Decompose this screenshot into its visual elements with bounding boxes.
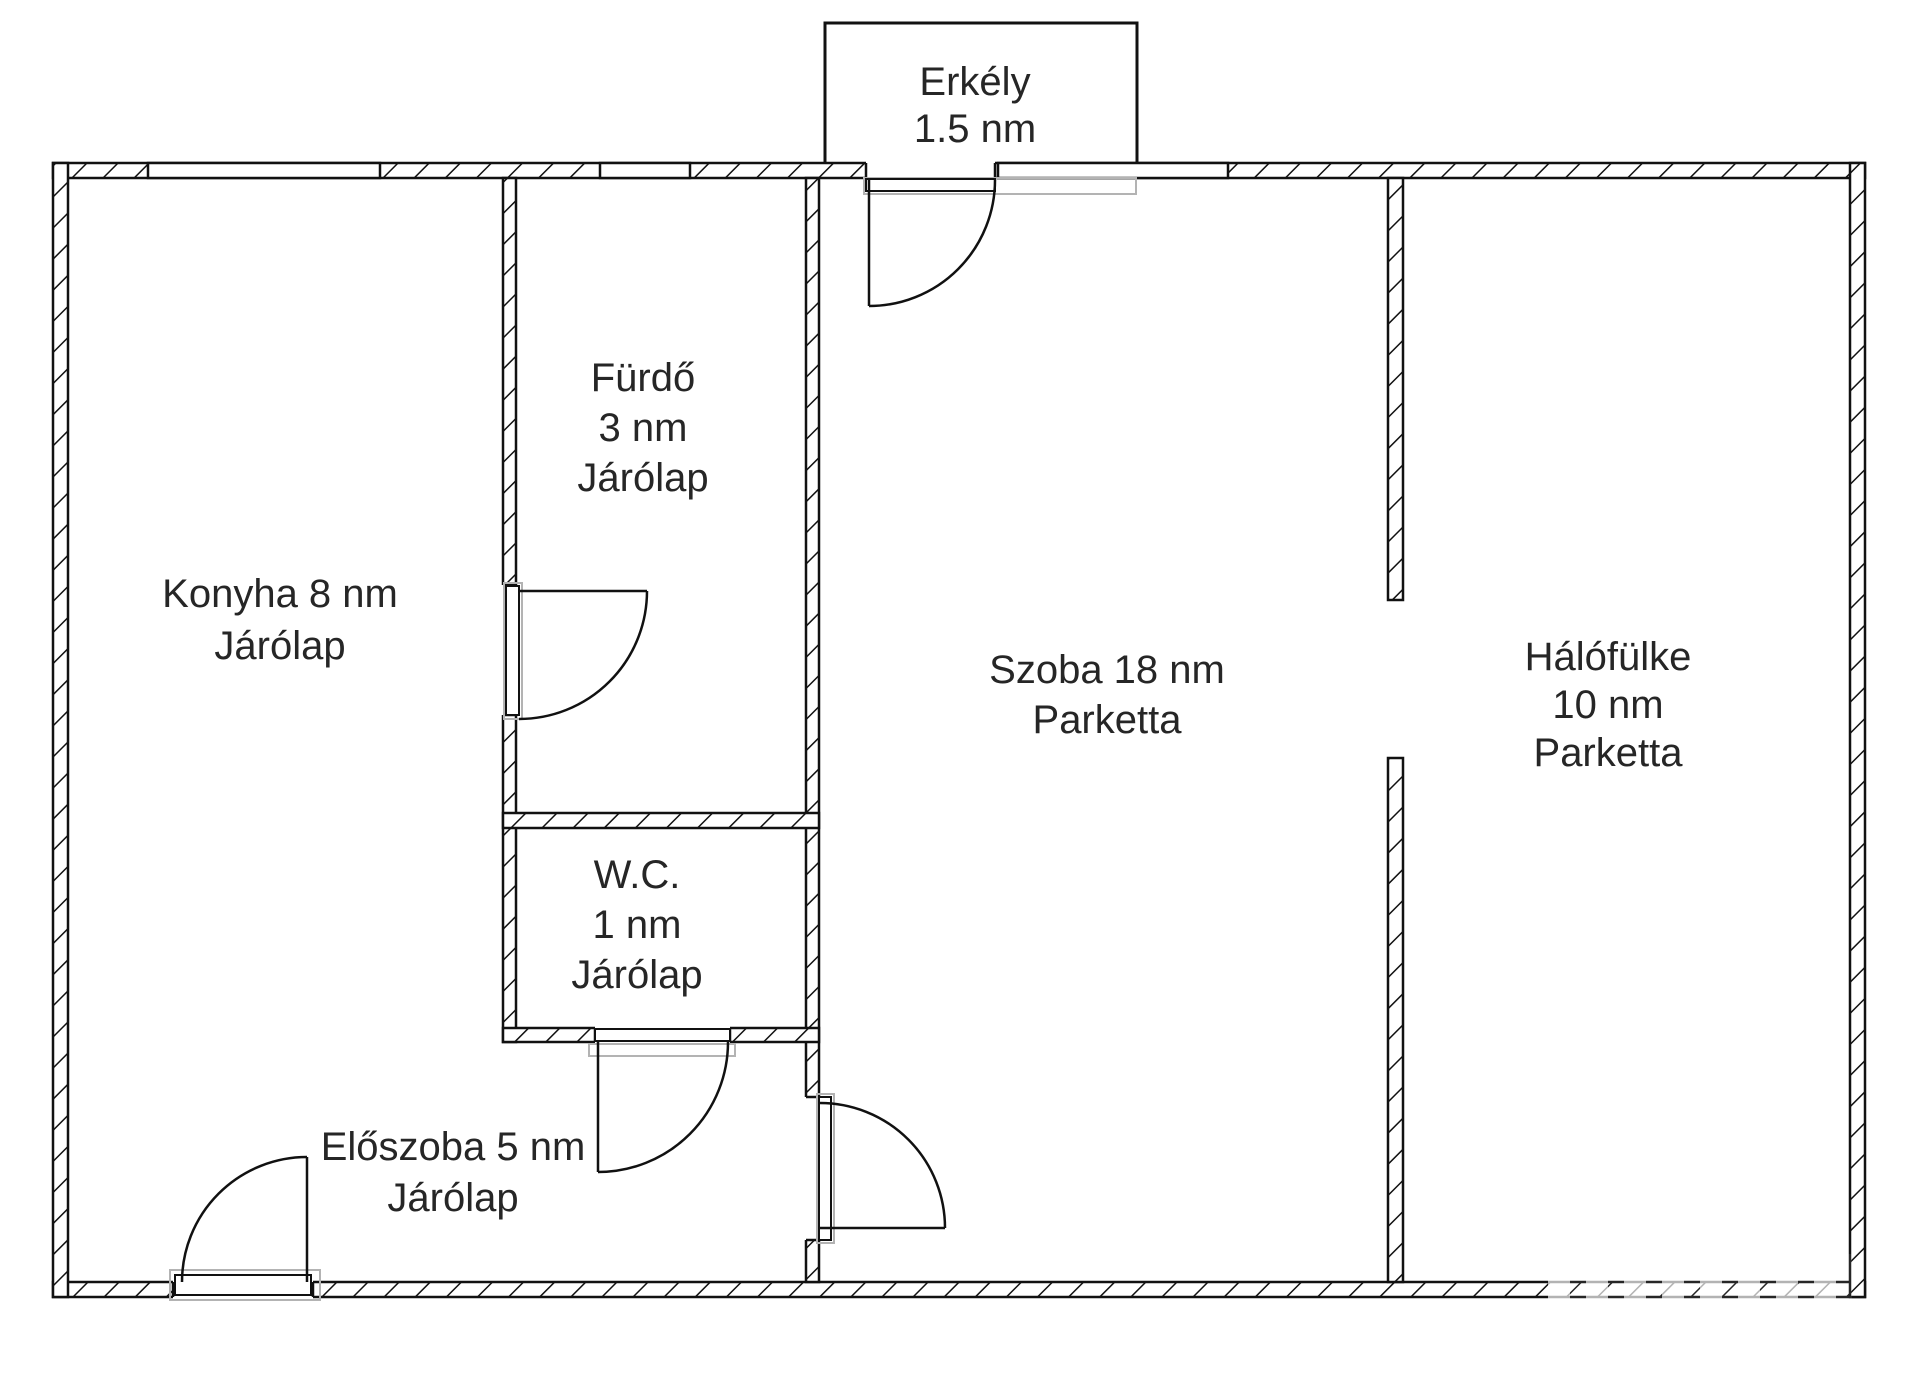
room-name: Konyha 8 nm bbox=[162, 568, 398, 620]
wall-furdo-wc bbox=[503, 813, 819, 828]
room-name: Fürdő bbox=[577, 353, 708, 403]
window-szoba bbox=[998, 163, 1228, 178]
wall-right bbox=[1850, 163, 1865, 1297]
frame-wc-door bbox=[589, 1044, 735, 1056]
room-label-eloszoba: Előszoba 5 nm Járólap bbox=[321, 1122, 586, 1224]
room-flooring: Járólap bbox=[162, 620, 398, 672]
room-name: Szoba 18 nm bbox=[989, 645, 1225, 695]
door-leaf-furdo bbox=[506, 586, 519, 715]
room-name: Előszoba 5 nm bbox=[321, 1122, 586, 1173]
room-flooring: Parketta bbox=[989, 695, 1225, 745]
room-label-wc: W.C. 1 nm Járólap bbox=[571, 850, 702, 1000]
door-leaf-entry bbox=[175, 1275, 311, 1295]
room-label-erkely: Erkély 1.5 nm bbox=[914, 59, 1036, 153]
room-label-furdo: Fürdő 3 nm Járólap bbox=[577, 353, 708, 503]
room-area: 1 nm bbox=[571, 900, 702, 950]
room-name: Erkély bbox=[914, 59, 1036, 106]
room-name: Hálófülke bbox=[1525, 633, 1692, 681]
wall-szoba-halofulke-top bbox=[1388, 178, 1403, 600]
room-label-konyha: Konyha 8 nm Járólap bbox=[162, 568, 398, 672]
room-name: W.C. bbox=[571, 850, 702, 900]
room-flooring: Járólap bbox=[577, 453, 708, 503]
watermark bbox=[1548, 1254, 1852, 1304]
room-label-szoba: Szoba 18 nm Parketta bbox=[989, 645, 1225, 745]
door-leaf-balcony bbox=[866, 179, 995, 191]
door-leaf-wc bbox=[595, 1029, 730, 1041]
room-area: 1.5 nm bbox=[914, 106, 1036, 153]
window-konyha bbox=[148, 163, 380, 178]
room-area: 10 nm bbox=[1525, 681, 1692, 729]
room-area: 3 nm bbox=[577, 403, 708, 453]
room-flooring: Járólap bbox=[571, 950, 702, 1000]
room-flooring: Járólap bbox=[321, 1173, 586, 1224]
wall-left bbox=[53, 163, 68, 1297]
room-label-halofulke: Hálófülke 10 nm Parketta bbox=[1525, 633, 1692, 777]
door-leaf-szoba bbox=[819, 1097, 831, 1240]
floor-plan: Erkély 1.5 nm Konyha 8 nm Járólap Fürdő … bbox=[0, 0, 1920, 1374]
wall-szoba-halofulke-bottom bbox=[1388, 758, 1403, 1282]
window-furdo bbox=[600, 163, 690, 178]
room-flooring: Parketta bbox=[1525, 729, 1692, 777]
